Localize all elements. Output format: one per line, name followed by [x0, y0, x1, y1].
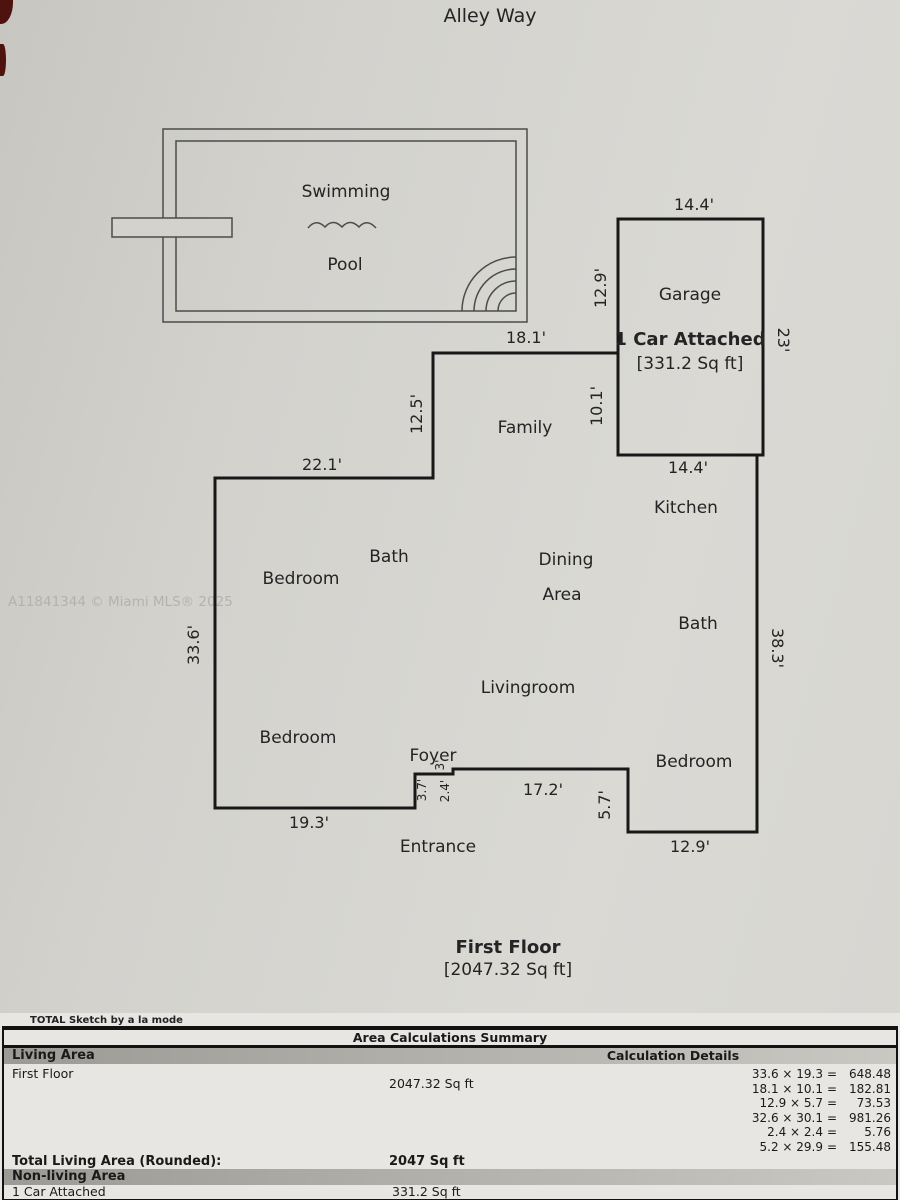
room-entrance: Entrance: [400, 837, 476, 857]
calc-row: 12.9 × 5.7=73.53: [731, 1096, 891, 1111]
calc-row: 5.2 × 29.9=155.48: [731, 1140, 891, 1155]
garage-dim-left-lower: 10.1': [587, 386, 606, 426]
first-floor-row-area: 2047.32 Sq ft: [389, 1076, 474, 1091]
area-calculations-table: Area Calculations Summary Living Area Ca…: [2, 1026, 898, 1200]
diving-board: [112, 218, 232, 237]
floor-area: [2047.32 Sq ft]: [444, 960, 572, 980]
nonliving-row-value: 331.2 Sq ft: [392, 1185, 461, 1198]
calc-expression: 33.6 × 19.3: [731, 1067, 823, 1082]
calc-expression: 12.9 × 5.7: [731, 1096, 823, 1111]
nonliving-area-header-band: Non-living Area: [4, 1169, 896, 1185]
table-title: Area Calculations Summary: [4, 1030, 896, 1048]
nonliving-area-header: Non-living Area: [4, 1169, 450, 1185]
room-dining-line1: Dining: [539, 550, 594, 570]
calc-row: 2.4 × 2.4=5.76: [731, 1125, 891, 1140]
dim-west-side: 33.6': [184, 625, 203, 665]
dim-east-side: 38.3': [768, 628, 787, 668]
calculation-details-list: 33.6 × 19.3=648.48 18.1 × 10.1=182.81 12…: [731, 1067, 891, 1154]
floor-title: First Floor: [455, 937, 560, 958]
room-bath-right: Bath: [678, 614, 718, 634]
dim-family-left: 12.5': [407, 394, 426, 434]
room-foyer: Foyer: [409, 746, 456, 766]
calc-equals: =: [823, 1140, 841, 1155]
calc-result: 981.26: [841, 1111, 891, 1126]
garage-area-label: [331.2 Sq ft]: [637, 354, 744, 374]
room-bedroom-bottom-left: Bedroom: [260, 728, 337, 748]
pool-label-line2: Pool: [327, 255, 362, 275]
room-bath-left: Bath: [369, 547, 409, 567]
nonliving-header-spacer: [450, 1169, 896, 1185]
calc-expression: 2.4 × 2.4: [731, 1125, 823, 1140]
room-family: Family: [498, 418, 553, 438]
room-bedroom-top-left: Bedroom: [263, 569, 340, 589]
calc-expression: 32.6 × 30.1: [731, 1111, 823, 1126]
garage-dim-top: 14.4': [674, 195, 714, 214]
calc-expression: 5.2 × 29.9: [731, 1140, 823, 1155]
total-living-area-value: 2047 Sq ft: [389, 1154, 465, 1169]
total-living-area-row: Total Living Area (Rounded): 2047 Sq ft: [4, 1154, 896, 1169]
garage-dim-left-upper: 12.9': [591, 268, 610, 308]
garage-type-label: 1 Car Attached: [614, 329, 765, 350]
area-calculations-section: TOTAL Sketch by a la mode Area Calculati…: [0, 1013, 900, 1200]
calc-equals: =: [823, 1111, 841, 1126]
pool-label-line1: Swimming: [302, 182, 391, 202]
water-wave-icon: [308, 223, 376, 229]
street-label: Alley Way: [444, 5, 537, 27]
sketch-brand: TOTAL Sketch by a la mode: [0, 1013, 900, 1026]
floorplan-scan-page: Alley Way A11841344 © Miami MLS® 2025 Sw…: [0, 0, 900, 1200]
total-living-area-label: Total Living Area (Rounded):: [12, 1154, 221, 1169]
dim-wing-top: 22.1': [302, 455, 342, 474]
calc-result: 648.48: [841, 1067, 891, 1082]
calc-equals: =: [823, 1096, 841, 1111]
garage-dim-bottom: 14.4': [668, 458, 708, 477]
mls-watermark: A11841344 © Miami MLS® 2025: [8, 594, 233, 610]
calculation-details-header: Calculation Details: [450, 1048, 896, 1064]
living-area-header-band: Living Area Calculation Details: [4, 1048, 896, 1064]
calc-equals: =: [823, 1067, 841, 1082]
swimming-pool: Swimming Pool: [112, 129, 527, 322]
calc-result: 155.48: [841, 1140, 891, 1155]
nonliving-row-label: 1 Car Attached: [12, 1185, 106, 1198]
dim-foyer-left: 3.7': [415, 779, 429, 801]
dim-south-left: 19.3': [289, 813, 329, 832]
calc-row: 33.6 × 19.3=648.48: [731, 1067, 891, 1082]
room-dining-line2: Area: [542, 585, 581, 605]
calc-equals: =: [823, 1082, 841, 1097]
first-floor-row-label: First Floor: [12, 1066, 73, 1081]
dim-family-top: 18.1': [506, 328, 546, 347]
dim-south-mid: 17.2': [523, 780, 563, 799]
living-area-body: First Floor 2047.32 Sq ft 33.6 × 19.3=64…: [4, 1064, 896, 1154]
calc-row: 32.6 × 30.1=981.26: [731, 1111, 891, 1126]
floorplan-drawing: Alley Way A11841344 © Miami MLS® 2025 Sw…: [0, 0, 900, 1013]
room-livingroom: Livingroom: [481, 678, 576, 698]
garage-label: Garage: [659, 285, 721, 305]
nonliving-area-row: 1 Car Attached 331.2 Sq ft: [4, 1185, 896, 1199]
garage-dim-right: 23': [774, 328, 793, 353]
pool-steps-icon: [462, 257, 516, 311]
calc-result: 73.53: [841, 1096, 891, 1111]
sketch-paper: Alley Way A11841344 © Miami MLS® 2025 Sw…: [0, 0, 900, 1013]
calc-result: 182.81: [841, 1082, 891, 1097]
calc-equals: =: [823, 1125, 841, 1140]
dim-entry-step: 5.7': [595, 790, 614, 820]
living-area-header: Living Area: [4, 1048, 450, 1064]
dim-south-right: 12.9': [670, 837, 710, 856]
calc-row: 18.1 × 10.1=182.81: [731, 1082, 891, 1097]
room-bedroom-right: Bedroom: [656, 752, 733, 772]
calc-expression: 18.1 × 10.1: [731, 1082, 823, 1097]
calc-result: 5.76: [841, 1125, 891, 1140]
room-kitchen: Kitchen: [654, 498, 718, 518]
dim-foyer-right: 2.4': [438, 780, 452, 802]
